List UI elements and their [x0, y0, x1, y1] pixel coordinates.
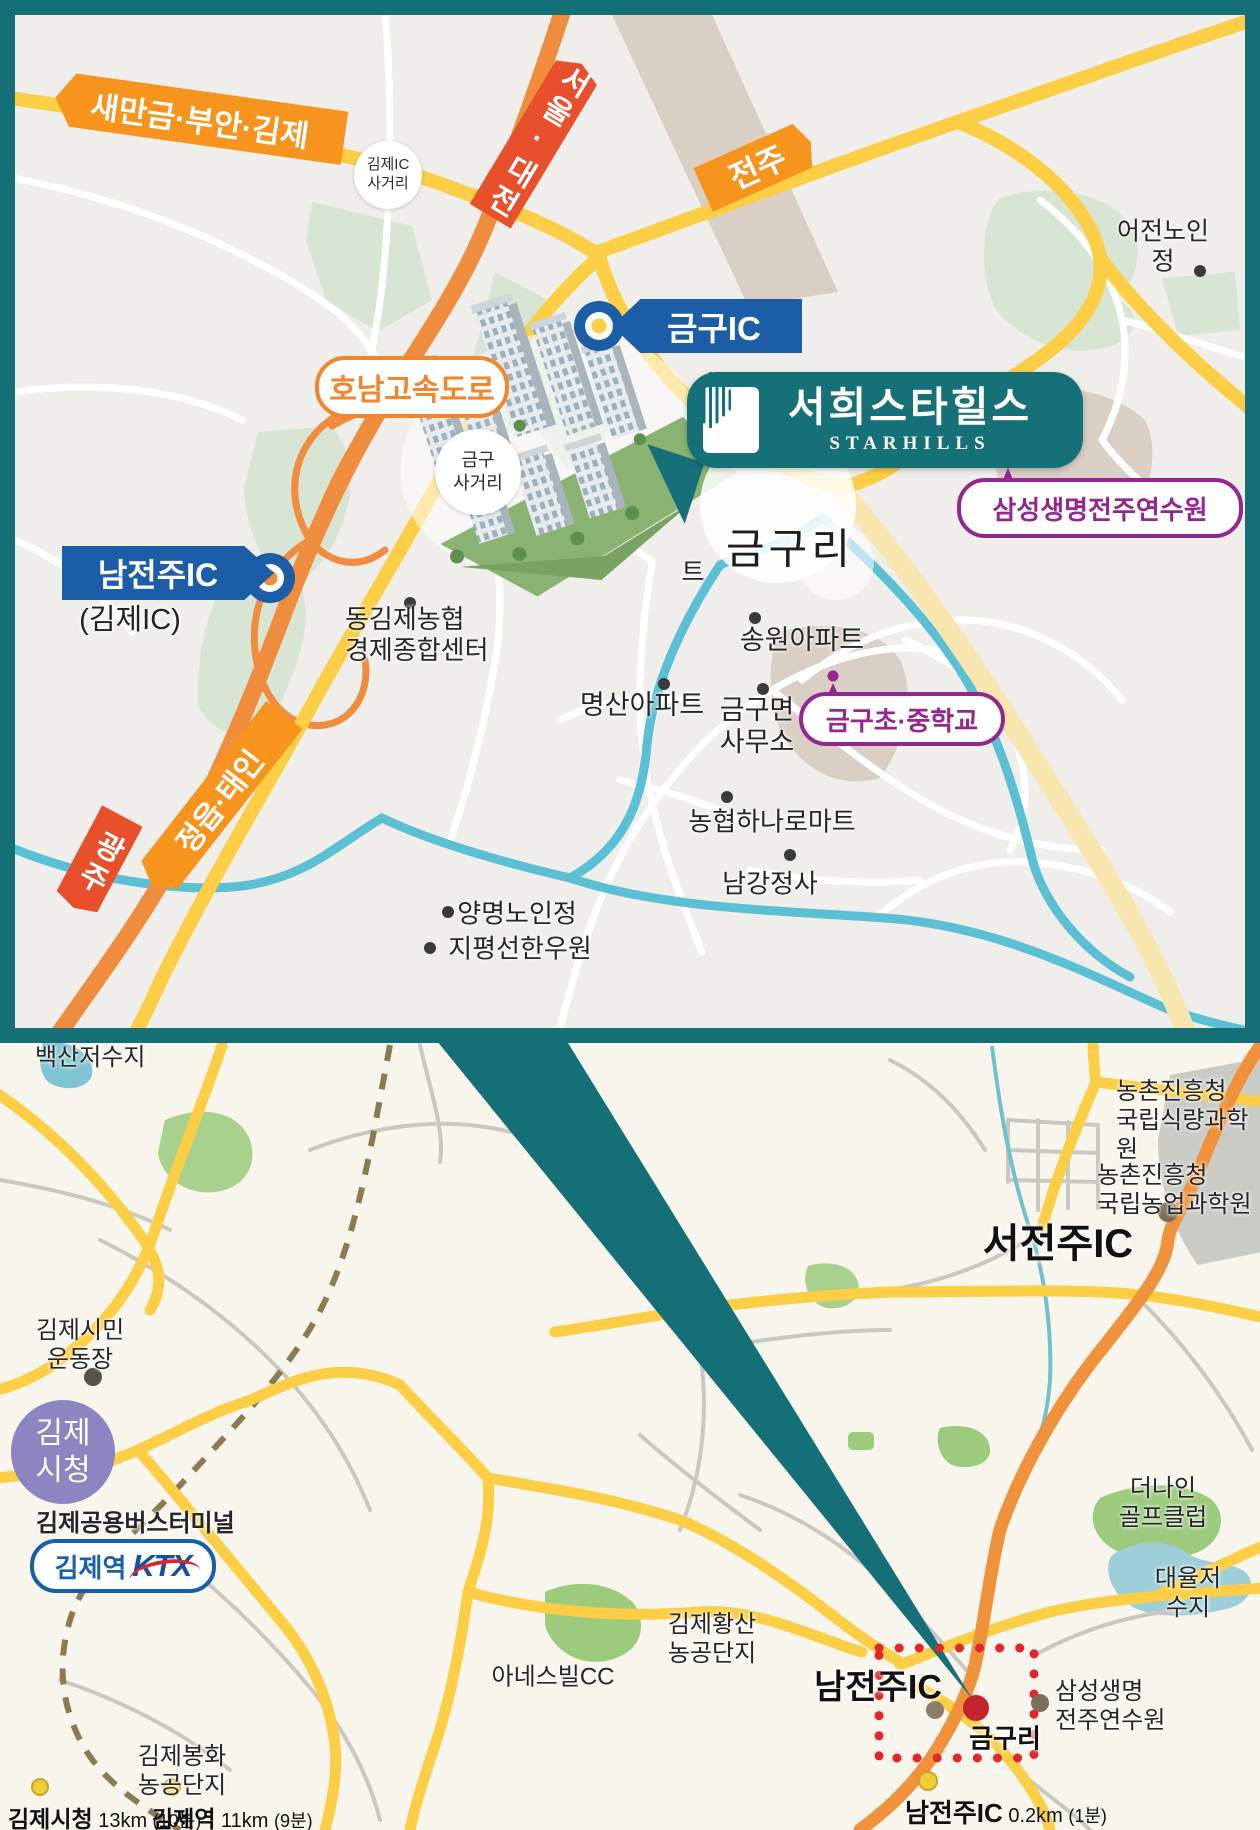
label-thenine-golf: 더나인 골프클럽	[1119, 1475, 1207, 1533]
label-text: 농촌진흥청 국립식량과학원	[1116, 1078, 1248, 1163]
distance-item-namjeonju-ic: 남전주IC 0.2km (1분)	[905, 1793, 1107, 1830]
poi-yangmyeong-senior: 양명노인정	[457, 899, 577, 930]
distance-time: (9분)	[274, 1811, 313, 1830]
poi-geumgu-office: 금구면 사무소	[720, 695, 795, 759]
distance-value: 0.2km	[1008, 1805, 1062, 1827]
poi-label: 남강정사	[722, 869, 818, 899]
ic-label: 남전주IC	[98, 550, 218, 596]
poi-label: 동김제농협 경제종합센터	[345, 604, 489, 665]
starhills-badge: 서희스타힐스 STARHILLS	[687, 372, 1083, 468]
area-label-geumguri: 금구리	[726, 516, 854, 577]
label-text: 더나인 골프클럽	[1119, 1475, 1207, 1531]
label-text: 서전주IC	[983, 1222, 1133, 1266]
landmark-name-en: STARHILLS	[759, 434, 1061, 453]
ic-alias-label: (김제IC)	[79, 604, 181, 636]
namjeonju-yellow-dot	[919, 1772, 937, 1790]
distance-time: (1분)	[1068, 1806, 1107, 1826]
poi-label: 어전노인정	[1117, 218, 1209, 276]
junction-label: 금구 사거리	[453, 449, 503, 496]
starhills-logo-icon	[703, 387, 759, 453]
honam-expressway-pill: 호남고속도로	[315, 356, 509, 418]
label-samsung-training-bottom: 삼성생명 전주연수원	[1055, 1678, 1165, 1736]
label-gimje-bonghwa: 김제봉화 농공단지	[138, 1743, 226, 1801]
label-text: 아네스빌CC	[492, 1664, 615, 1691]
label-text: 김제공용버스터미널	[36, 1510, 235, 1537]
distance-place: 남전주IC	[905, 1798, 1003, 1828]
geumgu-ic-badge: 금구IC	[612, 299, 802, 353]
label-geumguri-bottom: 금구리	[969, 1719, 1041, 1756]
poi-nh-hanaro-mart: 농협하나로마트	[688, 807, 855, 838]
distance-place: 김제시청	[8, 1806, 93, 1830]
ktx-logo: KTX	[132, 1548, 191, 1584]
poi-label: 농협하나로마트	[688, 807, 855, 837]
label-seojeonju-ic: 서전주IC	[983, 1211, 1133, 1269]
hidden-label-fragment: 트	[681, 558, 704, 588]
poi-songwon-apt: 송원아파트	[740, 625, 864, 657]
label-text: 백산저수지	[35, 1044, 145, 1071]
label-daeyul-reservoir: 대율저수지	[1152, 1565, 1224, 1623]
poi-label: 송원아파트	[740, 625, 864, 655]
label-text: 남전주IC	[814, 1669, 942, 1707]
namjeonju-ic-alias: (김제IC)	[79, 596, 181, 638]
gimje-ic-junction-circle: 김제IC 사거리	[354, 141, 422, 209]
label-anesville-cc: 아네스빌CC	[492, 1664, 615, 1693]
gimje-cityhall-badge: 김제 시청	[11, 1400, 115, 1504]
landmark-name-ko: 서희스타힐스	[759, 387, 1061, 428]
junction-label: 김제IC 사거리	[367, 156, 410, 194]
pill-label: 삼성생명전주연수원	[992, 490, 1207, 527]
pill-label: 호남고속도로	[329, 365, 495, 409]
label-text: 김제황산 농공단지	[668, 1611, 756, 1667]
label-text: 대율저수지	[1155, 1565, 1221, 1621]
label-rda-food: 농촌진흥청 국립식량과학원	[1116, 1078, 1260, 1164]
samsung-training-pill: 삼성생명전주연수원	[957, 478, 1243, 538]
label-gimje-bus-terminal: 김제공용버스터미널	[36, 1510, 235, 1539]
distance-item-station: 김제역 11km (9분)	[152, 1800, 313, 1830]
station-name: 김제역	[55, 1548, 127, 1585]
label-gimje-stadium: 김제시민 운동장	[36, 1317, 124, 1375]
ic-label: 금구IC	[667, 302, 761, 350]
label-text: 삼성생명 전주연수원	[1055, 1678, 1165, 1734]
geumgu-junction-circle: 금구 사거리	[435, 429, 521, 515]
label-namjeonju-ic-bottom: 남전주IC	[814, 1660, 942, 1709]
poi-label: 양명노인정	[457, 899, 577, 929]
poi-myeongsan-apt: 명산아파트	[580, 690, 704, 722]
distance-value: 13km	[98, 1810, 147, 1830]
label-text: 김제봉화 농공단지	[138, 1743, 226, 1799]
distance-place: 김제역	[152, 1806, 215, 1830]
label-text: 금구리	[969, 1724, 1041, 1754]
namjeonju-ic-badge: 남전주IC	[62, 546, 274, 600]
poi-label: 명산아파트	[580, 690, 704, 720]
label-text: 김제시민 운동장	[36, 1317, 124, 1373]
poi-label: 지평선한우원	[448, 934, 592, 964]
gimje-station-ktx-badge: 김제역 KTX	[30, 1539, 216, 1593]
label-text: 농촌진흥청 국립농업과학원	[1097, 1162, 1252, 1218]
samsung-dot	[1031, 1694, 1049, 1712]
label-baeksan-reservoir: 백산저수지	[35, 1044, 145, 1073]
cityhall-yellow-dot	[32, 1779, 48, 1795]
red-location-dot	[963, 1695, 989, 1721]
geumgu-school-pill: 금구초·중학교	[799, 692, 1005, 746]
poi-jipyeongseon-hanwoo: 지평선한우원	[448, 934, 592, 965]
label-gimje-hwangsan: 김제황산 농공단지	[668, 1611, 756, 1669]
poi-donggimje-nh: 동김제농협 경제종합센터	[345, 604, 489, 665]
fragment-text: 트	[681, 558, 704, 586]
poi-label: 금구면 사무소	[720, 695, 795, 757]
poi-eojeon-senior: 어전노인정	[1115, 218, 1212, 277]
poi-namgang-jeongsa: 남강정사	[722, 869, 818, 900]
badge-text: 김제 시청	[35, 1415, 90, 1490]
pill-label: 금구초·중학교	[826, 701, 978, 738]
area-text: 금구리	[726, 526, 854, 573]
distance-value: 11km	[221, 1810, 268, 1830]
location-map: 새만금·부안·김제 서울·대전 전주 정읍·태인 광주 호남고속도로 김제IC …	[0, 0, 1260, 1830]
